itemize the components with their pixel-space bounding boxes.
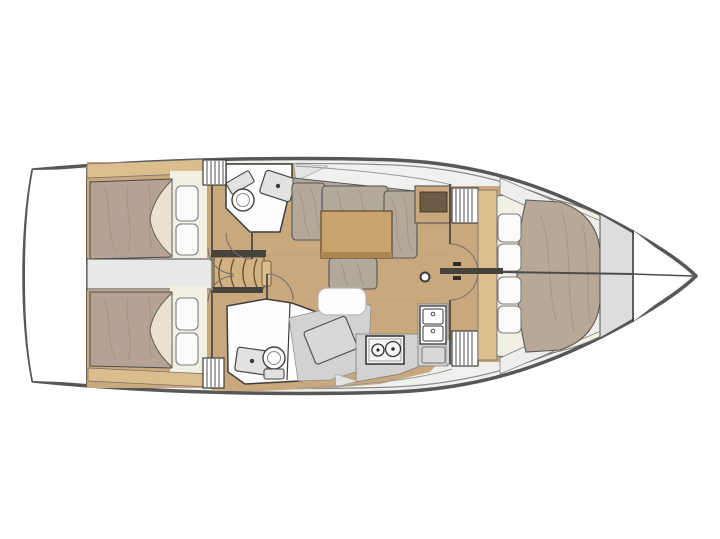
toilet-bowl (232, 189, 254, 211)
salon-cabinet (415, 186, 450, 223)
pillow (498, 277, 521, 304)
toilet-tank (264, 369, 284, 379)
cabinet-inset (420, 192, 447, 212)
salon-bench (329, 258, 377, 289)
pillows (176, 186, 198, 255)
hanging-locker (452, 188, 478, 223)
hanging-locker (203, 358, 224, 388)
aft-cabin-port (87, 159, 212, 264)
forward-door-bar (440, 268, 503, 274)
engine-compartment (87, 259, 212, 289)
boat-floor-plan (0, 0, 720, 539)
stove (366, 336, 404, 364)
aft-cabin-starboard (87, 286, 212, 389)
pillow (176, 333, 198, 365)
engine-room (87, 259, 212, 289)
pillow (176, 186, 198, 221)
sink-bowl (423, 309, 443, 324)
pillow (176, 224, 198, 255)
steps-top-frame (211, 250, 266, 257)
burner-center (376, 348, 379, 351)
door-handle (453, 262, 461, 266)
nav-seat (318, 288, 366, 315)
toilet (263, 347, 285, 379)
table-top (321, 211, 392, 258)
sink-bowl (423, 326, 443, 341)
transom-platform (25, 169, 87, 383)
hanging-locker (452, 331, 478, 366)
foot-locker (600, 214, 633, 338)
transom (25, 168, 87, 384)
double-sink (420, 306, 446, 363)
settee-chaise (292, 183, 325, 240)
toilet-bowl (263, 347, 285, 369)
burner-center (391, 347, 395, 351)
pillow (498, 214, 521, 242)
hanging-locker (203, 160, 226, 185)
door-handle (453, 276, 461, 280)
floor-plan-canvas (0, 0, 720, 539)
steps-bottom-frame (213, 287, 263, 293)
under-sink-locker (422, 347, 445, 363)
table-edge (321, 252, 392, 258)
mast-post (421, 273, 430, 282)
bed-head-shelf (478, 190, 497, 360)
salon-table (321, 211, 392, 258)
pillow (176, 298, 198, 330)
pillow (498, 244, 521, 271)
pillow (498, 306, 521, 333)
